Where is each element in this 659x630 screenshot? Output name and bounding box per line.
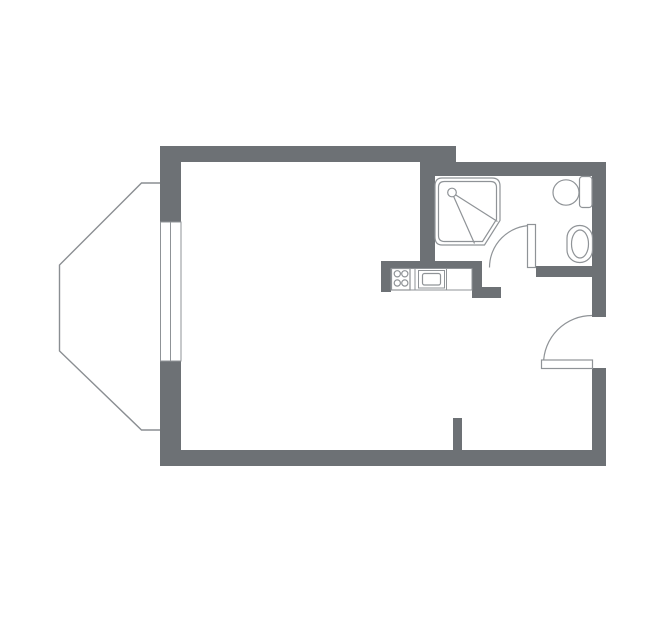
bathroom-door-swing-arc	[490, 226, 532, 268]
shower	[435, 178, 500, 245]
toilet-bowl	[553, 180, 579, 205]
wall-kitchen-right-leg	[472, 261, 482, 298]
wall-right-upper	[592, 162, 606, 317]
wall-bottom	[160, 450, 606, 466]
stove-burner-icon	[394, 280, 400, 286]
floor-plan-canvas	[0, 0, 659, 630]
bay-window	[60, 183, 161, 430]
shower-head-icon	[448, 188, 457, 197]
wall-bathroom-divider	[420, 162, 435, 269]
wall-right-lower	[592, 368, 606, 466]
wall-top-main	[160, 146, 456, 162]
stove-burner-icon	[402, 280, 408, 286]
wall-bathroom-bottom	[536, 266, 606, 277]
wall-entry-stub	[453, 418, 462, 452]
entrance-door-swing-arc	[544, 316, 593, 365]
stove-burner-icon	[402, 271, 408, 277]
stove-burner-icon	[394, 271, 400, 277]
wall-left-upper	[160, 146, 181, 223]
toilet-tank	[580, 177, 593, 208]
wall-top-bathroom	[420, 162, 606, 176]
floor-plan-svg	[0, 0, 659, 630]
wall-kitchen-left-leg	[381, 261, 391, 292]
bathroom-door-leaf	[528, 225, 536, 268]
entrance-door-leaf	[542, 360, 593, 369]
wall-kitchen-back	[381, 261, 482, 269]
oven-window	[423, 274, 441, 286]
wall-kitchen-foot	[482, 287, 501, 298]
